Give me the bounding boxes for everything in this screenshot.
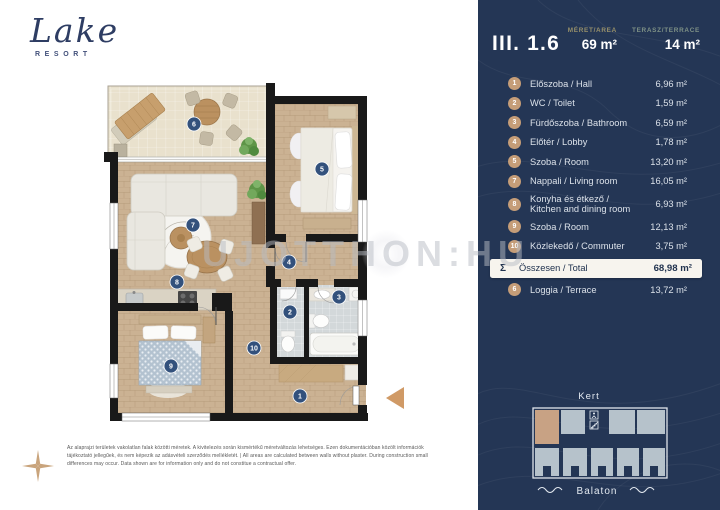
room-number-badge: 10: [508, 240, 521, 253]
plan-room-badge: 9: [164, 359, 178, 373]
entrance-arrow-icon: [386, 387, 404, 409]
info-panel: III. 1.6 MÉRET/AREA 69 m² TERASZ/TERRACE…: [478, 0, 720, 510]
room-number-badge: 9: [508, 220, 521, 233]
room-row: 2WC / Toilet1,59 m²: [490, 94, 702, 114]
terrace-label: TERASZ/TERRACE: [632, 27, 700, 34]
room-label: Előtér / Lobby: [530, 137, 655, 147]
plan-room-badge: 2: [283, 305, 297, 319]
plan-room-badge: 10: [247, 341, 261, 355]
room-area: 1,78 m²: [655, 137, 687, 147]
unit-id: III. 1.6: [492, 32, 560, 56]
room-number-badge: 1: [508, 77, 521, 90]
svg-text:4: 4: [287, 260, 291, 267]
room-area: 13,72 m²: [650, 285, 687, 295]
room-label: Előszoba / Hall: [530, 79, 655, 89]
room-row: 3Fürdőszoba / Bathroom6,59 m²: [490, 113, 702, 133]
unit-area: MÉRET/AREA 69 m²: [568, 27, 617, 52]
plan-room-badge: 7: [186, 218, 200, 232]
minimap-building: [533, 408, 667, 478]
room-number-badge: 6: [508, 283, 521, 296]
room-area: 16,05 m²: [650, 176, 687, 186]
sigma-symbol: Σ: [500, 263, 506, 274]
room-label: Szoba / Room: [530, 222, 650, 232]
hall-furniture: [279, 365, 365, 382]
watermark-glow: [362, 230, 410, 278]
disclaimer-text: Az alaprajzi területek vakolatlan falak …: [67, 444, 443, 468]
brochure-page: Lake RESORT: [0, 0, 720, 510]
total-area: 68,98 m²: [654, 263, 692, 274]
plan-room-badge: 5: [315, 162, 329, 176]
room-label: Nappali / Living room: [530, 176, 650, 186]
plan-room-badge: 1: [293, 389, 307, 403]
room-label: Konyha és étkező / Kitchen and dining ro…: [530, 194, 655, 215]
plan-room-badge: 4: [282, 255, 296, 269]
unit-terrace: TERASZ/TERRACE 14 m²: [632, 27, 700, 52]
plan-room-badge: 6: [187, 117, 201, 131]
room-area: 3,75 m²: [655, 241, 687, 251]
unit-stats: MÉRET/AREA 69 m² TERASZ/TERRACE 14 m²: [568, 27, 700, 52]
svg-text:5: 5: [320, 167, 324, 174]
room-number-badge: 5: [508, 155, 521, 168]
room-area: 12,13 m²: [650, 222, 687, 232]
svg-text:10: 10: [250, 346, 258, 353]
svg-text:7: 7: [191, 223, 195, 230]
svg-text:3: 3: [337, 295, 341, 302]
room-area: 6,96 m²: [655, 79, 687, 89]
brand-subtitle: RESORT: [35, 51, 119, 58]
compass-icon: [20, 448, 56, 484]
room-label: Loggia / Terrace: [530, 285, 650, 295]
svg-text:2: 2: [288, 310, 292, 317]
area-value: 69 m²: [568, 37, 617, 52]
room-label: Szoba / Room: [530, 157, 650, 167]
plan-room-badge: 3: [332, 290, 346, 304]
loggia-row: 6Loggia / Terrace13,72 m²: [490, 280, 702, 300]
room-row: 7Nappali / Living room16,05 m²: [490, 172, 702, 192]
room-area: 6,93 m²: [655, 199, 687, 209]
room-row: 4Előtér / Lobby1,78 m²: [490, 133, 702, 153]
building-minimap: Kert: [524, 384, 676, 504]
room-number-badge: 2: [508, 97, 521, 110]
room-row: 9Szoba / Room12,13 m²: [490, 217, 702, 237]
room-row: 5Szoba / Room13,20 m²: [490, 152, 702, 172]
room-list: 1Előszoba / Hall6,96 m² 2WC / Toilet1,59…: [490, 74, 702, 300]
room-number-badge: 4: [508, 136, 521, 149]
room-row: 1Előszoba / Hall6,96 m²: [490, 74, 702, 94]
room-label: Fürdőszoba / Bathroom: [530, 118, 655, 128]
minimap-lake-label: Balaton: [577, 486, 618, 497]
room-number-badge: 7: [508, 175, 521, 188]
minimap-garden-label: Kert: [578, 391, 599, 402]
svg-text:8: 8: [175, 280, 179, 287]
terrace-glass-door: [116, 157, 267, 162]
footer: Az alaprajzi területek vakolatlan falak …: [20, 444, 443, 484]
room-number-badge: 8: [508, 198, 521, 211]
svg-text:9: 9: [169, 364, 173, 371]
total-row: ΣÖsszesen / Total68,98 m²: [490, 259, 702, 278]
area-label: MÉRET/AREA: [568, 27, 617, 34]
brand-name: Lake: [30, 14, 119, 47]
room-label: Közlekedő / Commuter: [530, 241, 655, 251]
room-number-badge: 3: [508, 116, 521, 129]
brand-logo: Lake RESORT: [30, 14, 119, 58]
room-area: 13,20 m²: [650, 157, 687, 167]
minimap-highlighted-unit: [535, 410, 559, 444]
total-label: Összesen / Total: [519, 263, 654, 273]
svg-text:1: 1: [298, 394, 302, 401]
plan-room-badge: 8: [170, 275, 184, 289]
terrace-value: 14 m²: [632, 37, 700, 52]
room-area: 1,59 m²: [655, 98, 687, 108]
svg-text:6: 6: [192, 122, 196, 129]
room-label: WC / Toilet: [530, 98, 655, 108]
room-area: 6,59 m²: [655, 118, 687, 128]
unit-header: III. 1.6 MÉRET/AREA 69 m² TERASZ/TERRACE…: [492, 27, 700, 56]
elevator-stairs-icons: [590, 411, 598, 429]
room-row: 10Közlekedő / Commuter3,75 m²: [490, 237, 702, 257]
room-row: 8Konyha és étkező / Kitchen and dining r…: [490, 191, 702, 217]
